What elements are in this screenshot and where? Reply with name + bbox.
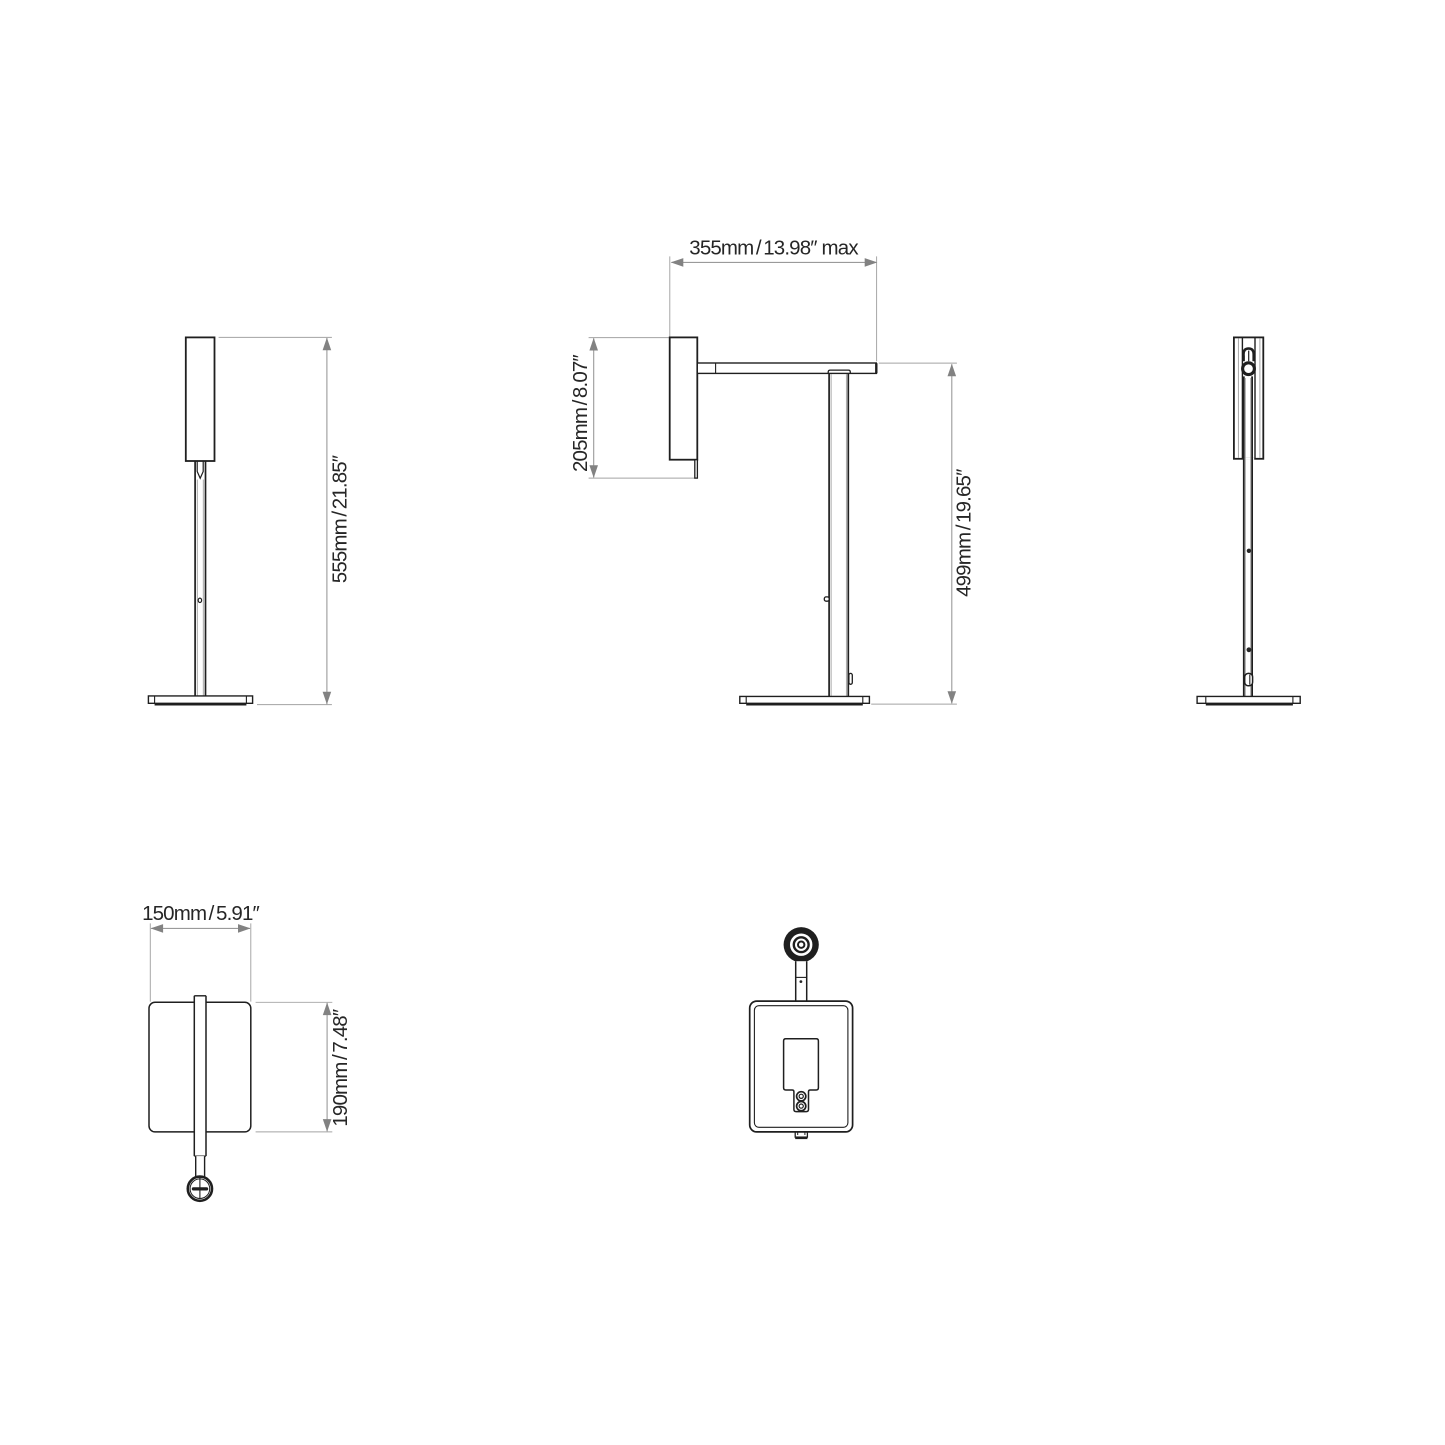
svg-text:555mm/21.85″: 555mm/21.85″	[329, 455, 352, 583]
svg-text:150mm/5.91″: 150mm/5.91″	[142, 902, 259, 925]
svg-text:190mm/7.48″: 190mm/7.48″	[329, 1009, 352, 1126]
svg-text:355mm/13.98″ max: 355mm/13.98″ max	[689, 237, 859, 260]
svg-text:205mm/8.07″: 205mm/8.07″	[569, 355, 592, 472]
svg-text:499mm/19.65″: 499mm/19.65″	[952, 469, 975, 597]
